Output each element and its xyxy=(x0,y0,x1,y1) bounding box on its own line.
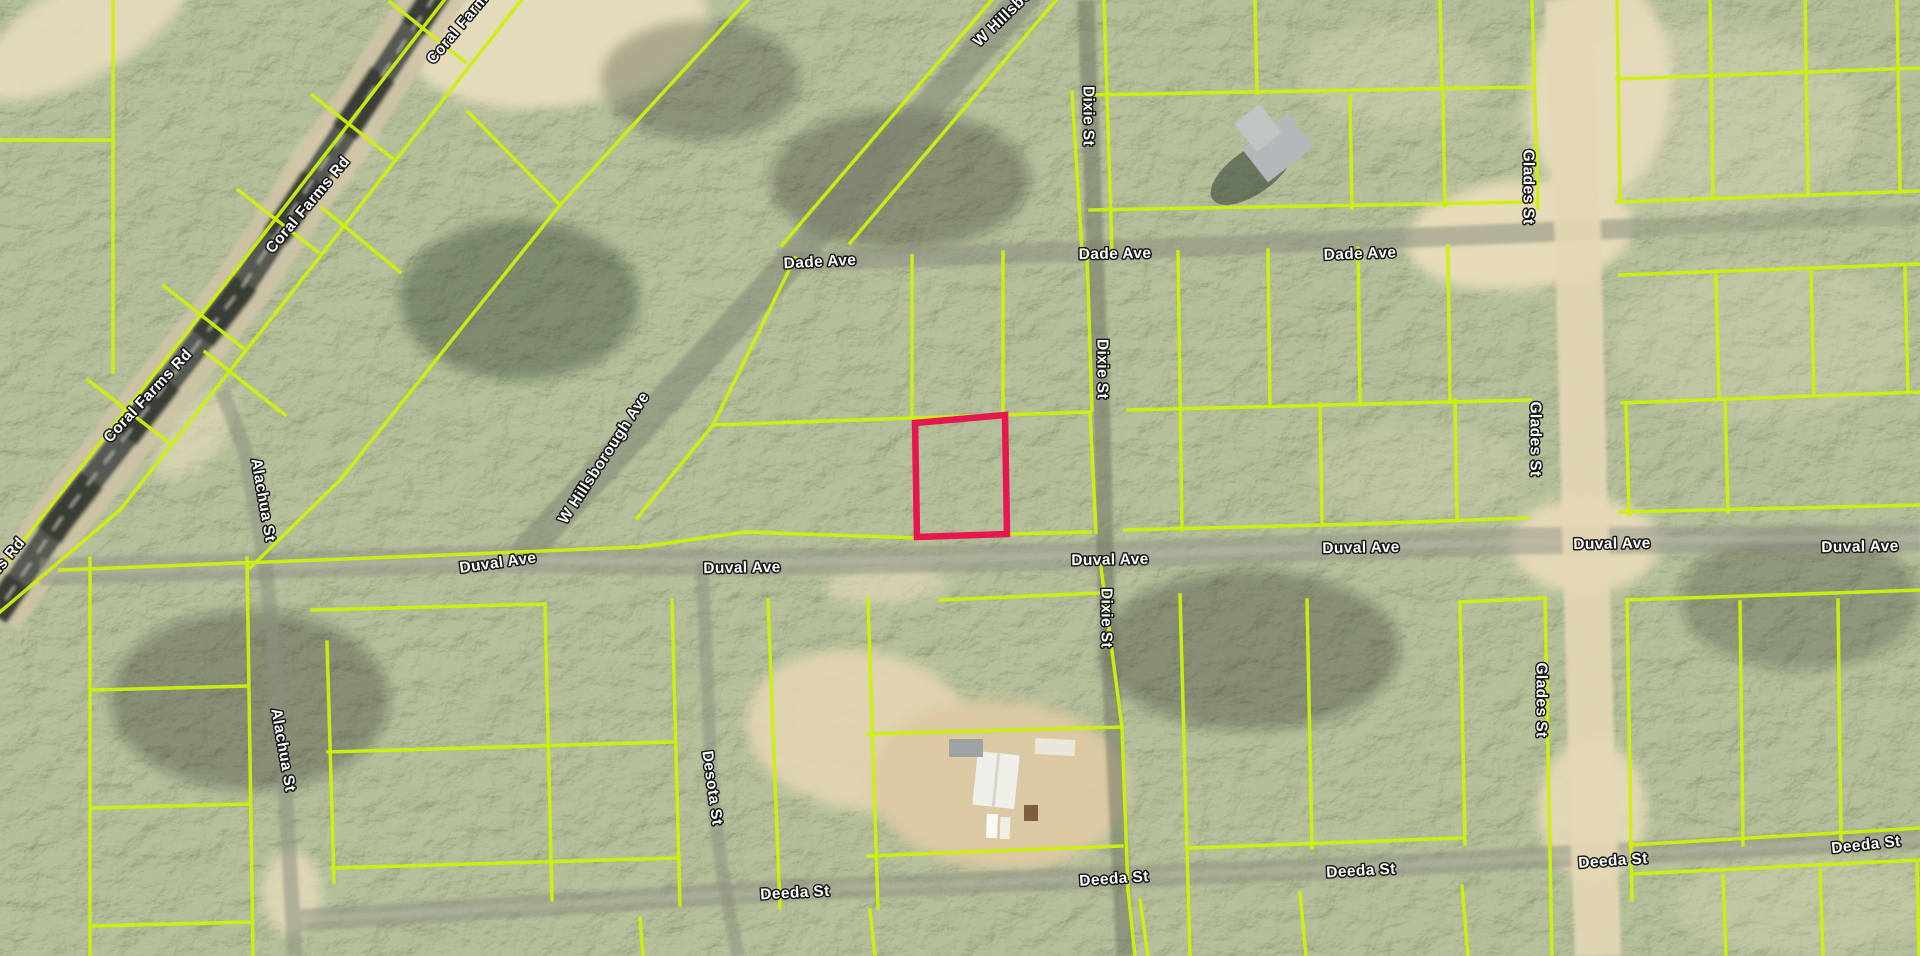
pale-ground-ne-3 xyxy=(1300,25,1490,125)
pale-ground-mid-right xyxy=(1310,425,1530,515)
pale-ground-ne-2 xyxy=(1610,260,1910,420)
parcel-boundary-line xyxy=(1455,400,1457,518)
parcel-boundary-line xyxy=(1320,404,1322,522)
street-label-duval-ave: Duval Ave xyxy=(1322,539,1400,557)
street-label-duval-ave: Duval Ave xyxy=(1071,551,1149,569)
canopy-shade-4 xyxy=(1100,570,1400,730)
homestead-shed-brown xyxy=(1024,805,1038,821)
street-label-duval-ave: Duval Ave xyxy=(703,559,781,577)
parcel-boundary-line xyxy=(1255,0,1257,93)
parcel-boundary-line xyxy=(1350,96,1352,208)
homestead-shed-gray xyxy=(949,739,983,757)
street-label-deeda-st: Deeda St xyxy=(760,883,830,904)
canopy-shade-1 xyxy=(400,220,640,380)
homestead-vehicle-2 xyxy=(1000,817,1011,839)
parcel-boundary-line xyxy=(1917,864,1919,956)
aerial-map[interactable]: Coral Farms RdCoral Farms RdCoral Farms … xyxy=(0,0,1920,956)
aerial-map-canvas[interactable]: Coral Farms RdCoral Farms RdCoral Farms … xyxy=(0,0,1920,956)
homestead-shed-white xyxy=(1035,738,1076,756)
street-label-glades-st: Glades St xyxy=(1527,401,1544,476)
street-label-glades-st: Glades St xyxy=(1533,662,1550,737)
street-label-duval-ave: Duval Ave xyxy=(1821,538,1899,556)
street-label-deeda-st: Deeda St xyxy=(1326,861,1396,882)
street-label-dixie-st: Dixie St xyxy=(1094,339,1111,399)
street-label-duval-ave: Duval Ave xyxy=(1573,535,1651,553)
parcel-boundary-line xyxy=(1008,532,1090,534)
street-label-dixie-st: Dixie St xyxy=(1098,588,1115,648)
street-label-dixie-st: Dixie St xyxy=(1080,86,1097,146)
street-label-glades-st: Glades St xyxy=(1520,149,1537,224)
street-label-dade-ave: Dade Ave xyxy=(1323,244,1396,264)
parcel-boundary-line xyxy=(1358,248,1360,404)
canopy-shade-5 xyxy=(600,20,800,140)
parcel-boundary-line xyxy=(1440,0,1442,90)
street-label-dade-ave: Dade Ave xyxy=(1079,245,1152,263)
parcel-boundary-line xyxy=(1448,246,1450,402)
glades-st-sand-road xyxy=(1568,0,1598,956)
parcel-boundary-line xyxy=(1268,250,1270,406)
parcel-boundary-line xyxy=(1443,94,1445,206)
homestead-vehicle-1 xyxy=(986,814,998,838)
